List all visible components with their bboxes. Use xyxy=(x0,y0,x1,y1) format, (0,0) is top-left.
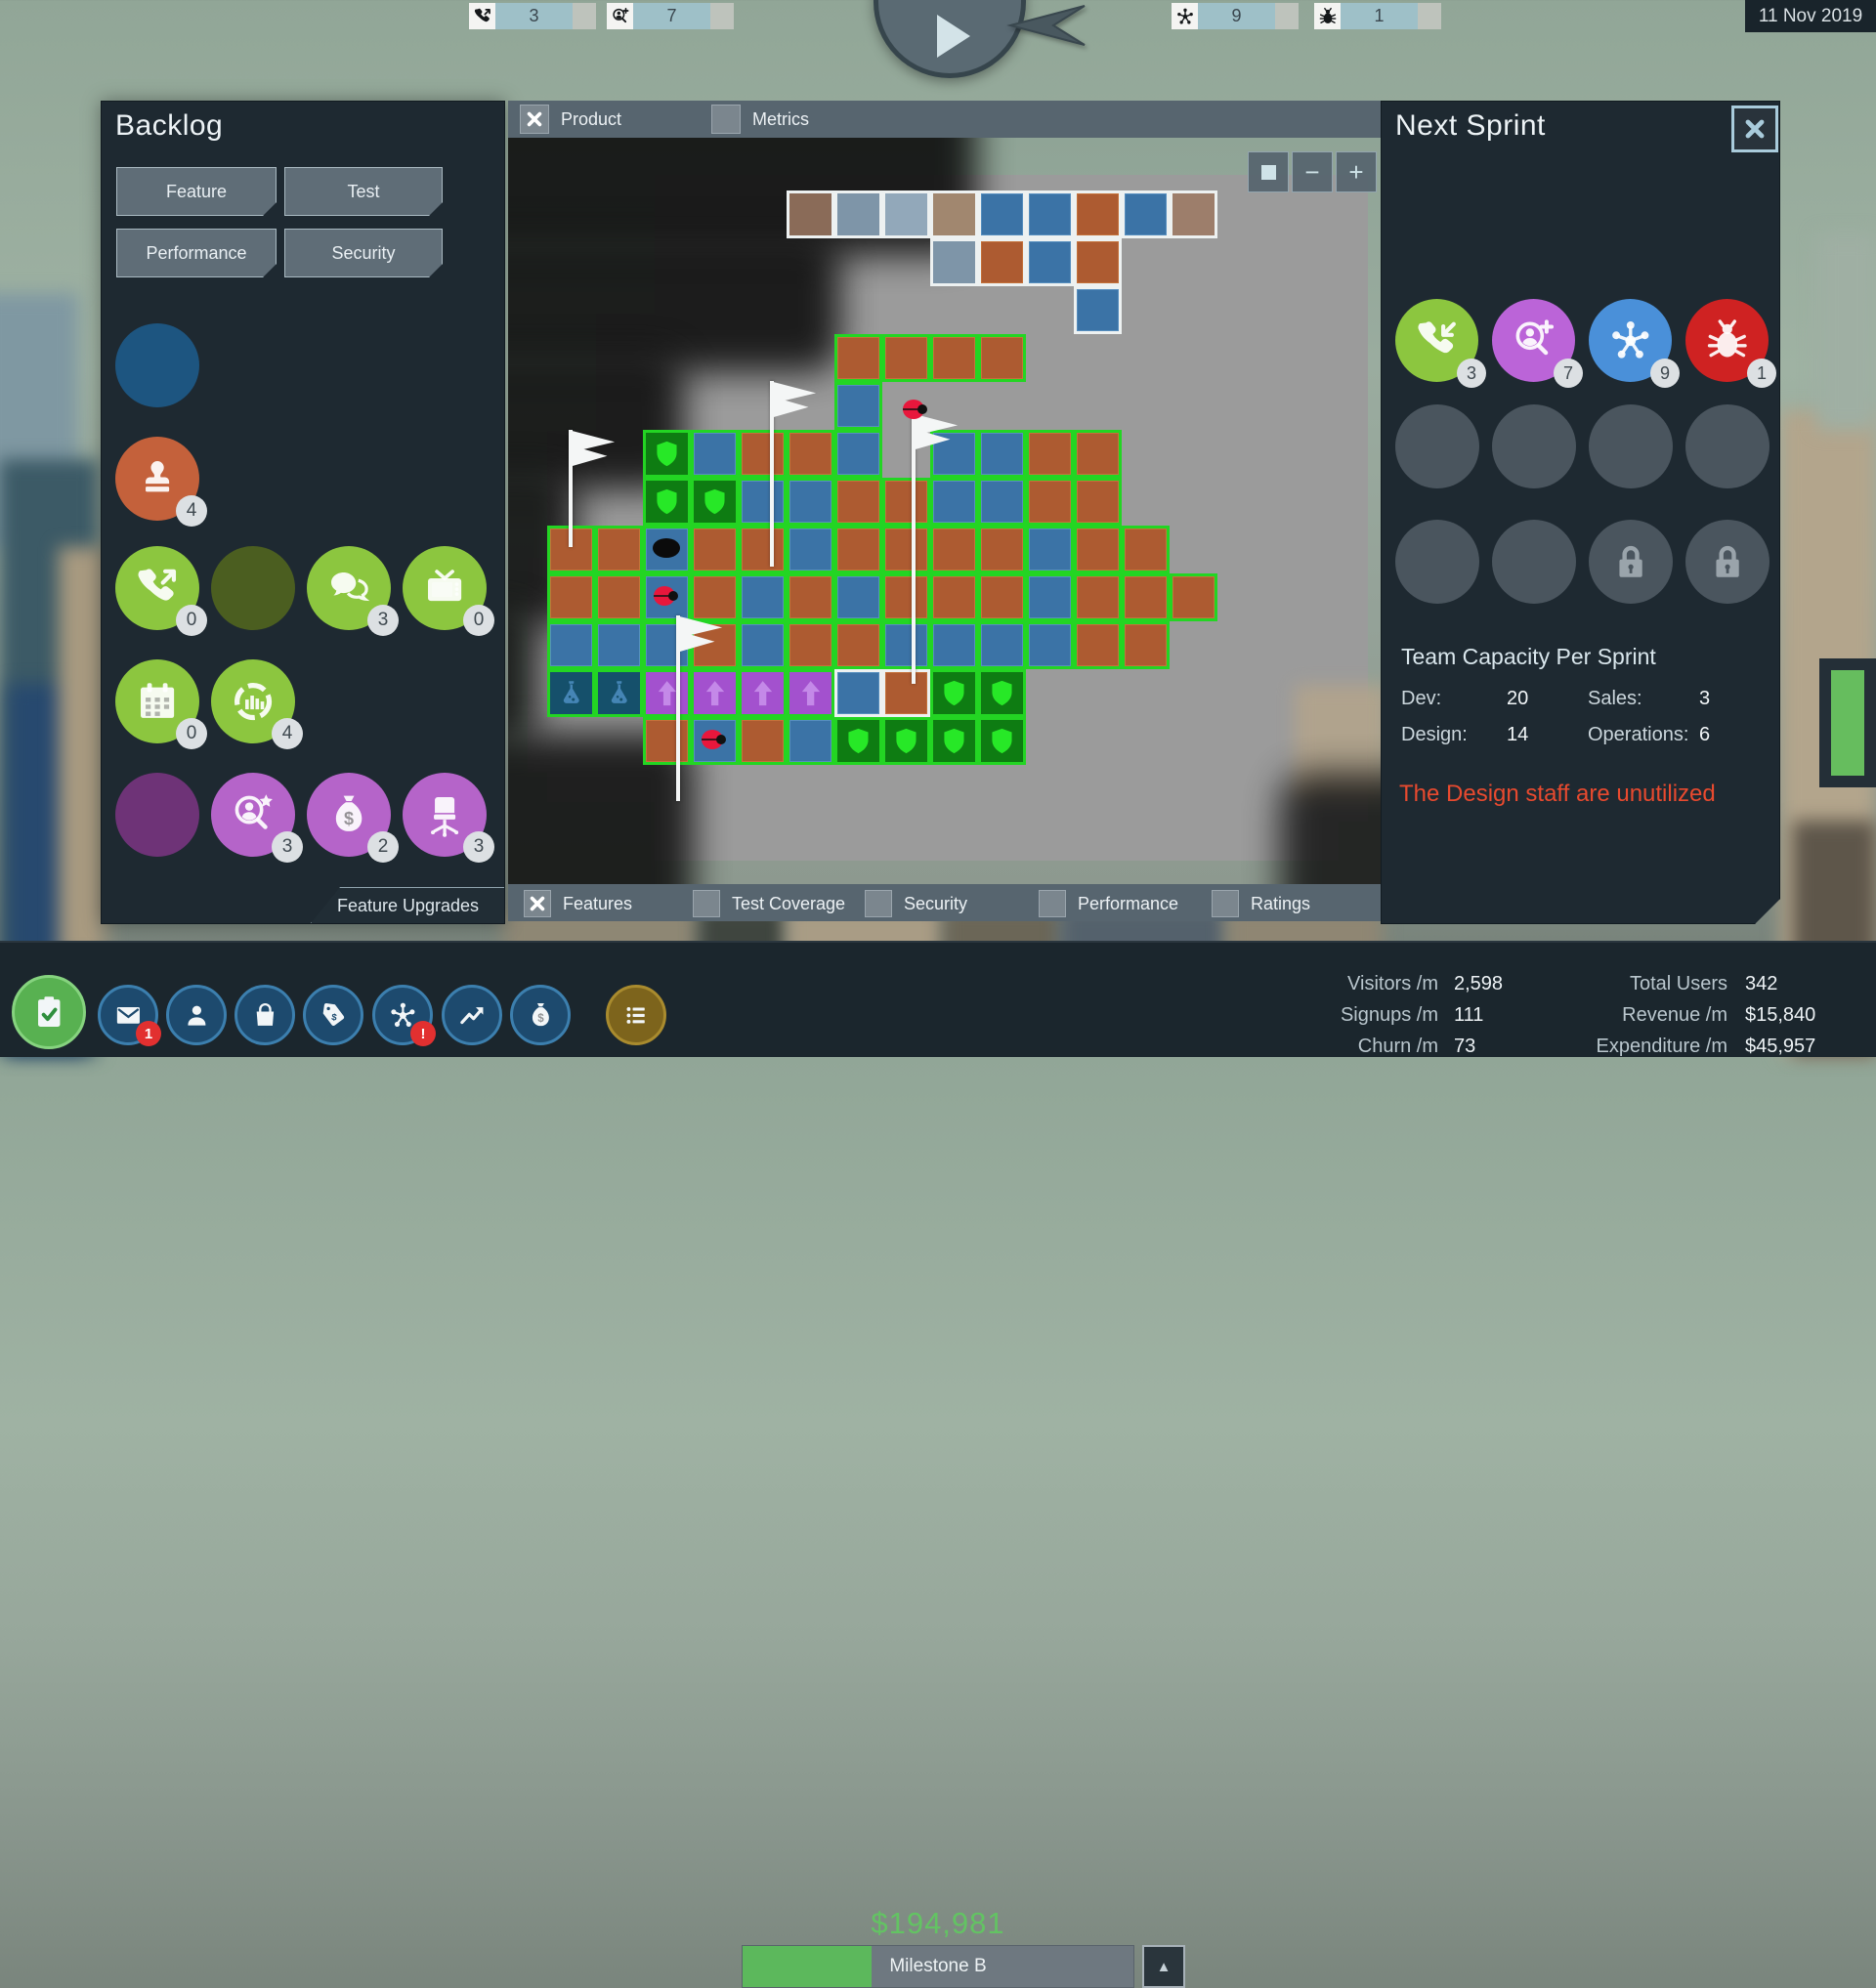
feature-upgrades-tab[interactable]: Feature Upgrades xyxy=(311,887,504,923)
module-tile-fbl[interactable] xyxy=(930,238,978,286)
toggle-label: Features xyxy=(563,894,632,914)
module-tile-br[interactable] xyxy=(834,621,882,669)
module-tile-bl[interactable] xyxy=(834,573,882,621)
queued-person-add-icon[interactable]: 7 xyxy=(1492,299,1575,382)
side-gauge-fill xyxy=(1831,670,1864,776)
queued-phone-in-icon[interactable]: 3 xyxy=(1395,299,1478,382)
count-badge: 7 xyxy=(1554,359,1583,388)
capacity-value: 6 xyxy=(1699,724,1710,746)
dot-marker-icon xyxy=(653,538,680,558)
module-tile-sh[interactable] xyxy=(882,717,930,765)
flag-marker xyxy=(676,615,725,801)
module-tile-br[interactable] xyxy=(1074,430,1122,478)
module-tile-br[interactable] xyxy=(1122,526,1170,573)
toggle-test-coverage[interactable]: Test Coverage xyxy=(693,890,845,917)
capacity-value: 20 xyxy=(1507,688,1528,710)
empty-slot[interactable] xyxy=(115,773,199,857)
flag-pennant-icon xyxy=(679,615,724,655)
module-tile-bl[interactable] xyxy=(1026,526,1074,573)
count-badge: 3 xyxy=(272,831,303,863)
module-tile-br[interactable] xyxy=(882,334,930,382)
module-tile-bl[interactable] xyxy=(739,621,787,669)
nav-clipboard-icon[interactable] xyxy=(12,975,86,1049)
toggle-label: Test Coverage xyxy=(732,894,845,914)
module-tile-br[interactable] xyxy=(1026,478,1074,526)
toggle-metrics[interactable]: Metrics xyxy=(711,105,809,134)
module-tile-br[interactable] xyxy=(834,526,882,573)
module-tile-pu[interactable] xyxy=(739,669,787,717)
module-tile-bl[interactable] xyxy=(834,669,882,717)
module-tile-br[interactable] xyxy=(691,573,739,621)
module-tile-br[interactable] xyxy=(691,526,739,573)
stat-label: Visitors /m xyxy=(1282,973,1438,995)
alert-badge: ! xyxy=(410,1021,436,1046)
module-tile-sh[interactable] xyxy=(930,717,978,765)
module-tile-fl[interactable] xyxy=(547,669,595,717)
expand-button[interactable]: ▲ xyxy=(1142,1945,1185,1988)
bg-building xyxy=(1817,234,1876,430)
unchecked-checkbox[interactable] xyxy=(711,105,741,134)
module-tile-br[interactable] xyxy=(978,573,1026,621)
network-icon xyxy=(1172,3,1198,29)
module-tile-br[interactable] xyxy=(739,717,787,765)
module-tile-br[interactable] xyxy=(1026,430,1074,478)
module-tile-flb[interactable] xyxy=(882,190,930,238)
nav-list-icon[interactable] xyxy=(606,985,666,1045)
backlog-button-test[interactable]: Test xyxy=(284,167,443,216)
module-tile-br[interactable] xyxy=(1122,573,1170,621)
module-tile-br[interactable] xyxy=(1170,573,1217,621)
center-view-icon xyxy=(1261,165,1276,180)
module-tile-fbl[interactable] xyxy=(834,190,882,238)
module-tile-br[interactable] xyxy=(834,478,882,526)
phone-out-icon[interactable]: 0 xyxy=(115,546,199,630)
ladybug-marker-icon xyxy=(652,584,681,608)
nav-moneybag-icon[interactable]: $ xyxy=(510,985,571,1045)
milestone-label: Milestone B xyxy=(743,1946,1133,1987)
module-tile-br[interactable] xyxy=(1074,190,1122,238)
module-tile-bl[interactable] xyxy=(739,573,787,621)
toggle-features[interactable]: Features xyxy=(524,890,632,917)
locked-slot[interactable] xyxy=(1685,520,1769,604)
module-tile-bl[interactable] xyxy=(978,190,1026,238)
empty-sprint-slot[interactable] xyxy=(1589,404,1673,488)
calendar-icon[interactable]: 0 xyxy=(115,659,199,743)
backlog-button-security[interactable]: Security xyxy=(284,229,443,277)
module-tile-bl[interactable] xyxy=(1026,573,1074,621)
count-badge: 2 xyxy=(367,831,399,863)
empty-sprint-slot[interactable] xyxy=(1395,520,1479,604)
module-tile-br[interactable] xyxy=(1122,621,1170,669)
toggle-security[interactable]: Security xyxy=(865,890,967,917)
module-tile-br[interactable] xyxy=(1074,621,1122,669)
toggle-label: Metrics xyxy=(752,109,809,130)
play-icon xyxy=(937,15,970,58)
map-legend-bar: FeaturesTest CoverageSecurityPerformance… xyxy=(508,884,1381,921)
capacity-label: Operations: xyxy=(1588,724,1688,746)
toggle-product[interactable]: Product xyxy=(520,105,621,134)
resource-count: 7 xyxy=(633,3,710,29)
backlog-title: Backlog xyxy=(115,109,223,143)
next-sprint-panel: Next Sprint 3791 Team Capacity Per Sprin… xyxy=(1381,101,1780,924)
nav-mail-icon[interactable]: 1 xyxy=(98,985,158,1045)
svg-text:$: $ xyxy=(537,1012,544,1024)
module-tile-bl[interactable] xyxy=(1026,190,1074,238)
module-tile-ftn[interactable] xyxy=(930,190,978,238)
module-tile-bl[interactable] xyxy=(834,430,882,478)
module-tile-bl[interactable] xyxy=(978,621,1026,669)
nav-network-icon[interactable]: ! xyxy=(372,985,433,1045)
map-tabs-bar: ProductMetrics xyxy=(508,101,1381,138)
map-center-button[interactable] xyxy=(1248,151,1289,192)
module-tile-br[interactable] xyxy=(787,621,834,669)
module-tile-sh[interactable] xyxy=(834,717,882,765)
toggle-label: Ratings xyxy=(1251,894,1310,914)
empty-slot[interactable] xyxy=(211,546,295,630)
count-badge: 0 xyxy=(176,605,207,636)
stat-value: 2,598 xyxy=(1454,973,1503,995)
toggle-performance[interactable]: Performance xyxy=(1039,890,1178,917)
count-badge: 4 xyxy=(272,718,303,749)
module-tile-br[interactable] xyxy=(930,334,978,382)
module-tile-pu[interactable] xyxy=(787,669,834,717)
count-badge: 1 xyxy=(1747,359,1776,388)
count-badge: 3 xyxy=(367,605,399,636)
stamp-icon[interactable]: 4 xyxy=(115,437,199,521)
resource-bar xyxy=(1418,3,1441,29)
checked-checkbox[interactable] xyxy=(524,890,551,917)
module-tile-sh[interactable] xyxy=(978,717,1026,765)
empty-sprint-slot[interactable] xyxy=(1492,520,1576,604)
empty-sprint-slot[interactable] xyxy=(1492,404,1576,488)
empty-sprint-slot[interactable] xyxy=(1685,404,1769,488)
count-badge: 9 xyxy=(1650,359,1680,388)
module-tile-bl[interactable] xyxy=(787,717,834,765)
flag-marker xyxy=(569,430,618,547)
resource-count: 1 xyxy=(1341,3,1418,29)
module-tile-br[interactable] xyxy=(787,573,834,621)
module-tile-br[interactable] xyxy=(978,238,1026,286)
empty-sprint-slot[interactable] xyxy=(1395,404,1479,488)
chart-icon[interactable]: 4 xyxy=(211,659,295,743)
stat-label: Revenue /m xyxy=(1524,1004,1727,1027)
empty-slot[interactable] xyxy=(115,323,199,407)
close-button[interactable] xyxy=(1731,106,1778,152)
module-tile-br[interactable] xyxy=(978,526,1026,573)
toggle-ratings[interactable]: Ratings xyxy=(1212,890,1310,917)
module-tile-bl[interactable] xyxy=(691,430,739,478)
module-tile-bl[interactable] xyxy=(834,382,882,430)
nav-tag-icon[interactable]: $ xyxy=(303,985,363,1045)
module-tile-br[interactable] xyxy=(1074,238,1122,286)
resource-counter: 1 xyxy=(1314,3,1441,29)
flag-pennant-icon xyxy=(773,381,818,420)
module-tile-br[interactable] xyxy=(1074,478,1122,526)
count-badge: 3 xyxy=(463,831,494,863)
phone-out-icon xyxy=(469,3,495,29)
module-tile-bl[interactable] xyxy=(547,621,595,669)
locked-slot[interactable] xyxy=(1589,520,1673,604)
backlog-button-feature[interactable]: Feature xyxy=(116,167,277,216)
backlog-panel: Backlog FeatureTestPerformanceSecurity 4… xyxy=(101,101,505,924)
capacity-label: Design: xyxy=(1401,724,1468,746)
module-tile-br[interactable] xyxy=(1074,526,1122,573)
unchecked-checkbox[interactable] xyxy=(1039,890,1066,917)
module-tile-bl[interactable] xyxy=(1026,621,1074,669)
stat-label: Total Users xyxy=(1524,973,1727,995)
resource-counter: 9 xyxy=(1172,3,1299,29)
module-tile-sh[interactable] xyxy=(691,478,739,526)
resource-counter: 3 xyxy=(469,3,596,29)
svg-text:$: $ xyxy=(344,809,354,828)
alert-badge: 1 xyxy=(136,1021,161,1046)
count-badge: 0 xyxy=(176,718,207,749)
map-plus-button[interactable]: + xyxy=(1336,151,1377,192)
chair-icon[interactable]: 3 xyxy=(403,773,487,857)
backlog-button-performance[interactable]: Performance xyxy=(116,229,277,277)
side-gauge xyxy=(1819,658,1876,787)
flag-marker xyxy=(912,413,960,684)
module-tile-bl[interactable] xyxy=(978,430,1026,478)
nav-trend-icon[interactable] xyxy=(442,985,502,1045)
unchecked-checkbox[interactable] xyxy=(1212,890,1239,917)
module-tile-bl[interactable] xyxy=(978,478,1026,526)
module-tile-bl[interactable] xyxy=(1074,286,1122,334)
resource-counter: 7 xyxy=(607,3,734,29)
toggle-label: Product xyxy=(561,109,621,130)
count-badge: 4 xyxy=(176,495,207,527)
resource-count: 3 xyxy=(495,3,573,29)
resource-count: 9 xyxy=(1198,3,1275,29)
resource-bar xyxy=(573,3,596,29)
module-tile-br[interactable] xyxy=(547,573,595,621)
checked-checkbox[interactable] xyxy=(520,105,549,134)
module-tile-br[interactable] xyxy=(595,573,643,621)
queued-bug-icon[interactable]: 1 xyxy=(1685,299,1769,382)
ladybug-marker-icon xyxy=(700,728,729,751)
module-tile-br[interactable] xyxy=(1074,573,1122,621)
date-display: 11 Nov 2019 xyxy=(1745,0,1876,32)
milestone-progress[interactable]: Milestone B xyxy=(742,1945,1134,1988)
count-badge: 0 xyxy=(463,605,494,636)
flag-marker xyxy=(770,381,819,567)
module-tile-br[interactable] xyxy=(978,334,1026,382)
unchecked-checkbox[interactable] xyxy=(865,890,892,917)
nav-person-icon[interactable] xyxy=(166,985,227,1045)
capacity-title: Team Capacity Per Sprint xyxy=(1401,644,1656,670)
stat-value: 342 xyxy=(1745,973,1777,995)
stat-value: $15,840 xyxy=(1745,1004,1815,1027)
capacity-label: Sales: xyxy=(1588,688,1642,710)
map-minus-button[interactable]: − xyxy=(1292,151,1333,192)
tv-icon[interactable]: 0 xyxy=(403,546,487,630)
capacity-value: 14 xyxy=(1507,724,1528,746)
queued-network-icon[interactable]: 9 xyxy=(1589,299,1672,382)
module-tile-fb2[interactable] xyxy=(1170,190,1217,238)
capacity-value: 3 xyxy=(1699,688,1710,710)
product-map: −+ xyxy=(508,138,1381,884)
ladybug-marker-icon xyxy=(901,398,930,421)
module-tile-br[interactable] xyxy=(834,334,882,382)
flag-pennant-icon xyxy=(572,430,617,469)
flag-pole xyxy=(912,413,916,684)
cursor-icon xyxy=(1002,0,1087,59)
stat-value: 111 xyxy=(1454,1004,1483,1027)
module-tile-fl[interactable] xyxy=(595,669,643,717)
toggle-label: Performance xyxy=(1078,894,1178,914)
module-tile-bl[interactable] xyxy=(1026,238,1074,286)
resource-bar xyxy=(1275,3,1299,29)
resource-bar xyxy=(710,3,734,29)
person-add-icon xyxy=(607,3,633,29)
chat-icon[interactable]: 3 xyxy=(307,546,391,630)
module-tile-bl[interactable] xyxy=(1122,190,1170,238)
money-display: $194,981 xyxy=(743,1906,1133,1941)
bottom-bar: 1$!$ $194,981 Milestone B ▲ Visitors /m2… xyxy=(0,941,1876,1057)
module-tile-sh[interactable] xyxy=(643,478,691,526)
toggle-label: Security xyxy=(904,894,967,914)
module-tile-bl[interactable] xyxy=(595,621,643,669)
warning-text: The Design staff are unutilized xyxy=(1399,781,1716,808)
unchecked-checkbox[interactable] xyxy=(693,890,720,917)
stat-label: Signups /m xyxy=(1282,1004,1438,1027)
module-tile-sh[interactable] xyxy=(643,430,691,478)
count-badge: 3 xyxy=(1457,359,1486,388)
nav-bag-icon[interactable] xyxy=(234,985,295,1045)
moneybag-icon[interactable]: $2 xyxy=(307,773,391,857)
module-tile-fbr[interactable] xyxy=(787,190,834,238)
person-star-icon[interactable]: 3 xyxy=(211,773,295,857)
next-sprint-title: Next Sprint xyxy=(1395,109,1546,143)
capacity-label: Dev: xyxy=(1401,688,1441,710)
bug-icon xyxy=(1314,3,1341,29)
module-tile-sh[interactable] xyxy=(978,669,1026,717)
